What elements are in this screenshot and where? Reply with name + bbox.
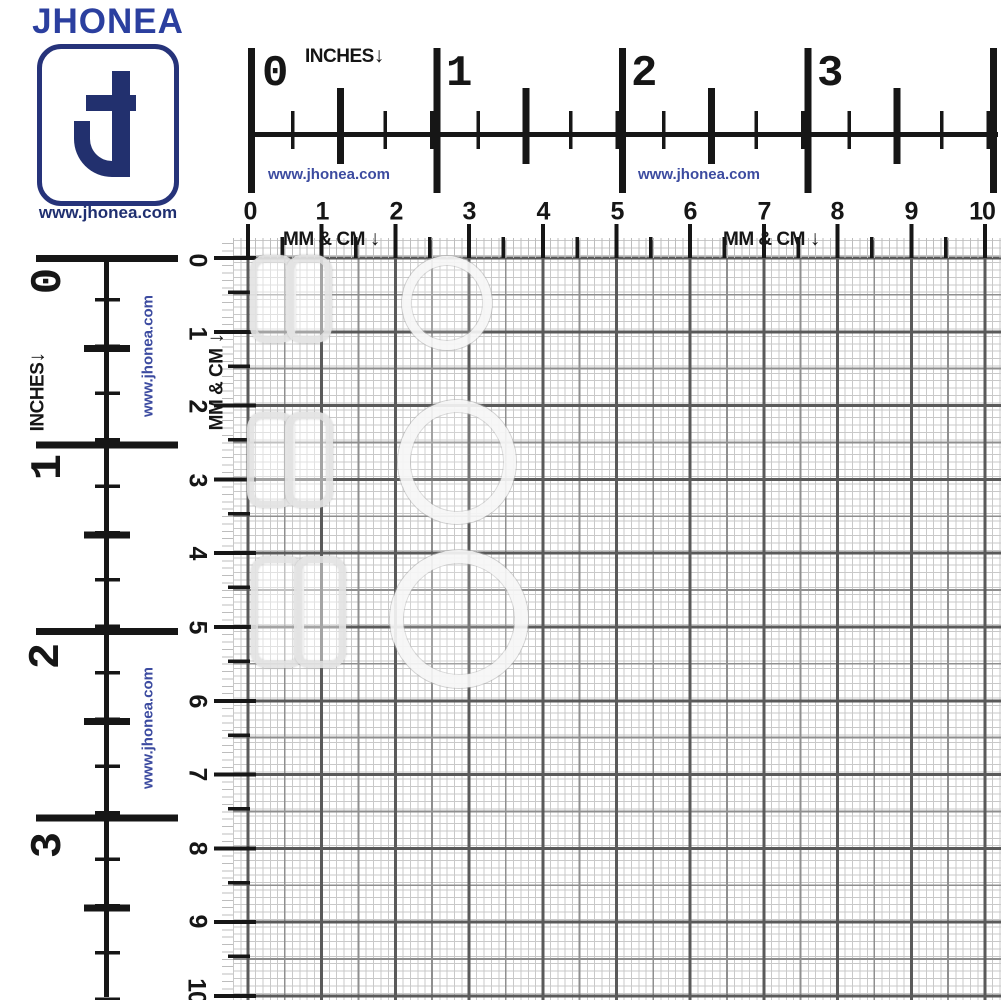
left-cm-0: 0 — [185, 254, 210, 267]
left-cm-7: 7 — [185, 768, 210, 781]
top-cm-5: 5 — [611, 200, 624, 225]
top-inches-label: INCHES↓ — [305, 45, 384, 66]
down-arrow-icon: ↓ — [810, 227, 820, 250]
top-ruler-website-2: www.jhonea.com — [638, 167, 760, 182]
brand-website: www.jhonea.com — [0, 204, 216, 221]
brand-name: JHONEA — [0, 4, 216, 39]
j-hook — [74, 121, 130, 177]
top-ruler-website-1: www.jhonea.com — [268, 167, 390, 182]
left-cm-5: 5 — [185, 621, 210, 634]
clear-ring-large — [390, 550, 528, 688]
slider-right-window — [285, 412, 333, 508]
top-cm-4: 4 — [537, 200, 550, 225]
top-cm-8: 8 — [831, 200, 844, 225]
left-inch-2: 2 — [25, 643, 69, 669]
left-inches-label: INCHES↓ — [27, 353, 48, 432]
left-cm-9: 9 — [185, 915, 210, 928]
left-cm-4: 4 — [185, 547, 210, 560]
mm-grid-background — [233, 240, 1001, 1000]
top-cm-1: 1 — [316, 200, 329, 225]
top-mmcm-label-1: MM & CM ↓ — [283, 228, 380, 249]
left-ruler-line — [104, 255, 109, 997]
top-cm-6: 6 — [684, 200, 697, 225]
slider-right-window — [294, 556, 347, 668]
top-cm-2: 2 — [390, 200, 403, 225]
left-ruler-website-1: www.jhonea.com — [141, 295, 156, 417]
top-ruler-quarter-ticks — [248, 111, 998, 149]
top-cm-7: 7 — [758, 200, 771, 225]
slider-right-window — [286, 255, 332, 343]
top-mmcm-label-2: MM & CM ↓ — [723, 228, 820, 249]
top-cm-9: 9 — [905, 200, 918, 225]
top-inch-0: 0 — [262, 52, 288, 96]
j-monogram-icon — [58, 71, 158, 195]
left-cm-2: 2 — [185, 400, 210, 413]
top-inch-3: 3 — [817, 52, 843, 96]
j-crossbar — [86, 95, 136, 111]
top-ruler-line — [248, 132, 998, 137]
top-inch-1: 1 — [446, 52, 472, 96]
clear-slider-small — [250, 255, 332, 343]
left-mmcm-label: MM & CM ↓ — [206, 334, 227, 431]
logo-box — [37, 44, 179, 206]
left-ruler-website-2: www.jhonea.com — [141, 667, 156, 789]
down-arrow-icon: ↓ — [370, 227, 380, 250]
left-cm-8: 8 — [185, 842, 210, 855]
left-cm-10: 10 — [184, 978, 209, 1000]
left-cm-6: 6 — [185, 695, 210, 708]
clear-ring-small — [402, 256, 492, 350]
left-cm-3: 3 — [185, 474, 210, 487]
top-cm-10: 10 — [969, 200, 995, 225]
top-cm-3: 3 — [463, 200, 476, 225]
left-cm-1: 1 — [185, 327, 210, 340]
left-inch-3: 3 — [27, 832, 71, 858]
clear-ring-medium — [398, 400, 516, 524]
top-inch-2: 2 — [631, 52, 657, 96]
clear-slider-medium — [247, 412, 333, 508]
left-inch-0: 0 — [27, 268, 71, 294]
measurement-chart: JHONEA www.jhonea.com 0 1 2 3 INCHES↓ ww… — [0, 0, 1001, 1000]
left-inch-1: 1 — [27, 454, 71, 480]
clear-slider-large — [251, 556, 346, 668]
top-cm-0: 0 — [244, 200, 257, 225]
right-arrow-icon: ↓ — [26, 353, 49, 363]
left-ruler-5mm-ticks — [228, 256, 250, 1000]
down-arrow-icon: ↓ — [374, 44, 384, 67]
